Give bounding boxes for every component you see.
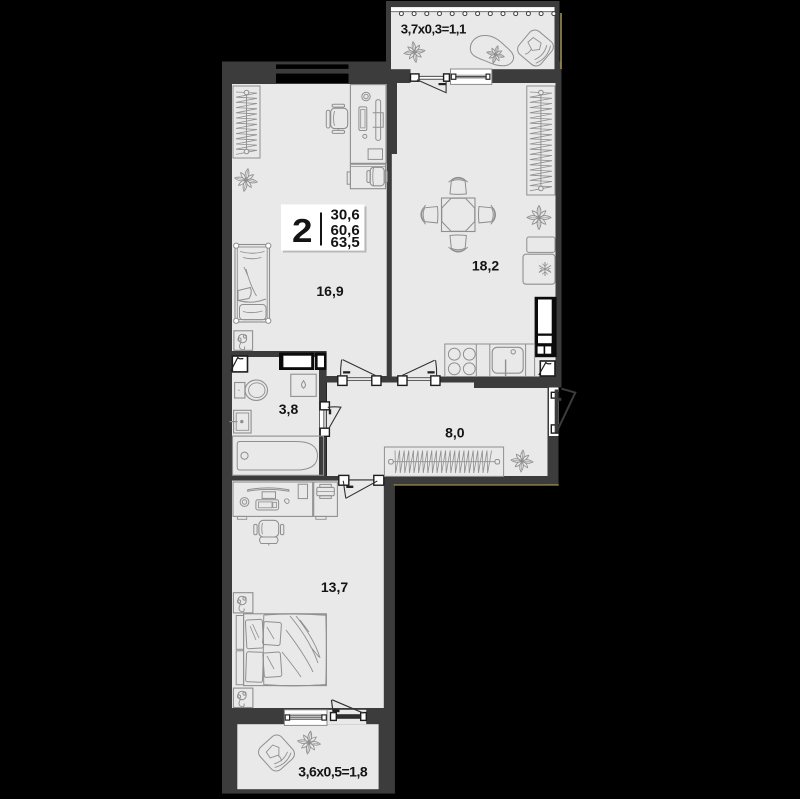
svg-text:3,7x0,3=1,1: 3,7x0,3=1,1 (401, 21, 466, 36)
svg-text:8,0: 8,0 (445, 424, 465, 440)
svg-text:16,9: 16,9 (316, 283, 343, 299)
svg-text:3,8: 3,8 (279, 401, 299, 417)
svg-text:63,5: 63,5 (331, 234, 360, 251)
svg-text:13,7: 13,7 (321, 579, 348, 595)
svg-text:18,2: 18,2 (472, 258, 499, 274)
svg-text:2: 2 (292, 212, 313, 249)
svg-text:3,6x0,5=1,8: 3,6x0,5=1,8 (298, 763, 368, 779)
